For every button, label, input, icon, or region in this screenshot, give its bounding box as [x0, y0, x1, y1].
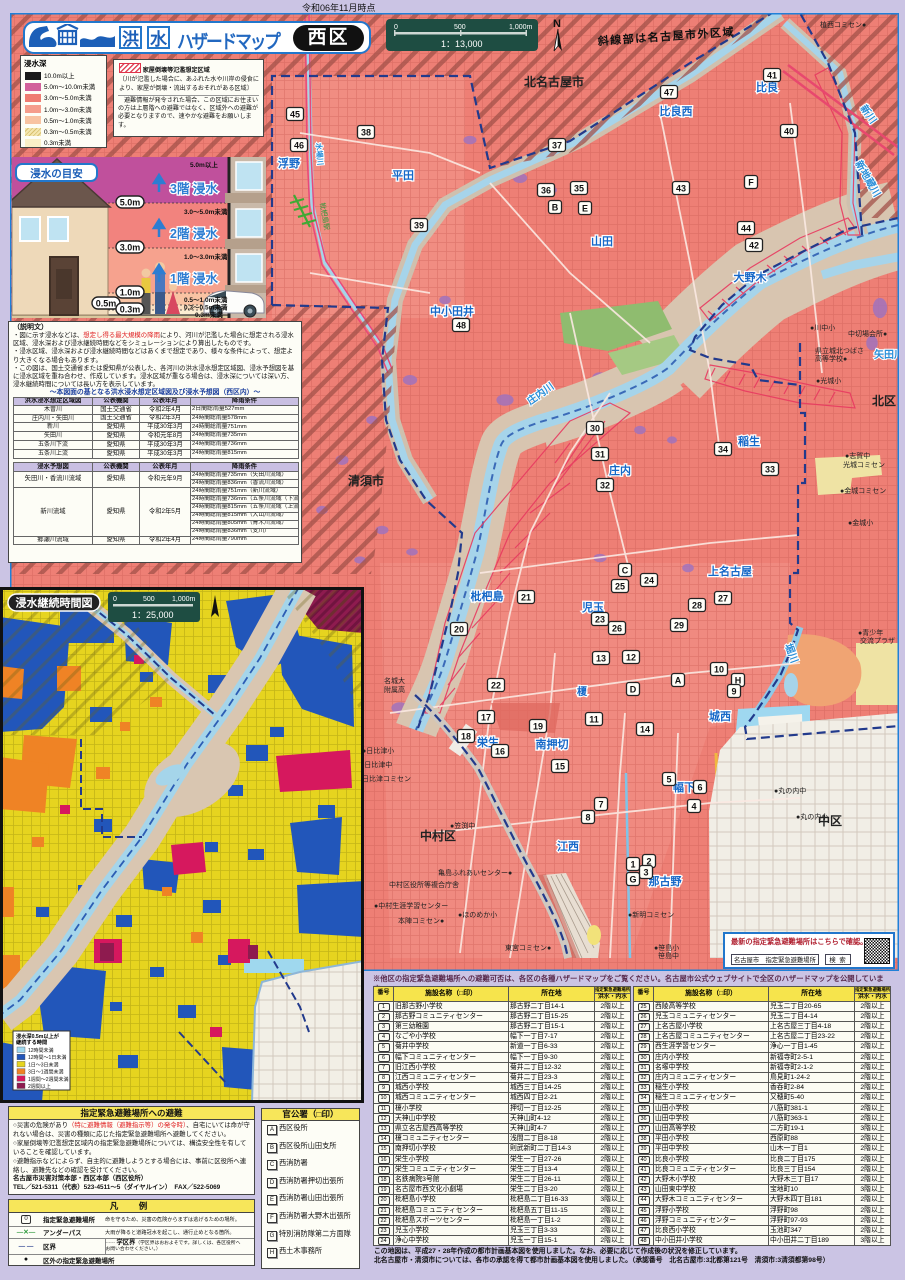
svg-text:1.0m: 1.0m	[120, 288, 141, 298]
svg-text:1日～3日未満: 1日～3日未満	[28, 1061, 59, 1068]
svg-text:5.0m: 5.0m	[120, 198, 141, 208]
svg-text:●笹島小: ●笹島小	[654, 943, 679, 952]
svg-text:稲生: 稲生	[738, 434, 760, 448]
svg-text:本陣コミセン●: 本陣コミセン●	[398, 916, 444, 925]
svg-text:1：13,000: 1：13,000	[441, 39, 483, 49]
svg-text:北名古屋市: 北名古屋市	[524, 74, 584, 89]
svg-text:9: 9	[731, 687, 736, 697]
svg-text:1: 1	[630, 860, 635, 870]
svg-text:5.0m以上: 5.0m以上	[190, 160, 218, 169]
svg-text:34: 34	[718, 445, 728, 455]
svg-text:1：25,000: 1：25,000	[132, 610, 174, 620]
svg-text:30: 30	[590, 424, 600, 434]
svg-text:3日～1週間未満: 3日～1週間未満	[28, 1069, 64, 1076]
svg-text:名城大: 名城大	[384, 676, 405, 685]
svg-text:25: 25	[615, 582, 625, 592]
svg-text:F: F	[748, 178, 754, 188]
svg-text:23: 23	[595, 615, 605, 625]
svg-text:0: 0	[113, 596, 117, 603]
svg-text:●日比津中: ●日比津中	[360, 760, 392, 769]
svg-text:0: 0	[394, 24, 398, 31]
svg-text:18: 18	[461, 732, 471, 742]
svg-text:矢田川: 矢田川	[874, 348, 899, 361]
svg-text:26: 26	[612, 624, 622, 634]
svg-text:33: 33	[765, 465, 775, 475]
svg-text:40: 40	[784, 127, 794, 137]
svg-text:植西コミセン●: 植西コミセン●	[820, 20, 866, 29]
svg-text:27: 27	[718, 594, 728, 604]
svg-text:5: 5	[666, 775, 671, 785]
svg-text:21: 21	[521, 593, 531, 603]
svg-text:山田: 山田	[591, 234, 613, 248]
svg-text:A: A	[675, 676, 682, 686]
svg-text:G: G	[629, 875, 636, 885]
svg-text:31: 31	[595, 450, 605, 460]
svg-text:43: 43	[676, 184, 686, 194]
svg-text:N: N	[553, 18, 561, 30]
svg-text:浸水継続時間図: 浸水継続時間図	[16, 596, 93, 610]
svg-text:39: 39	[414, 221, 424, 231]
svg-text:中小田井: 中小田井	[430, 304, 474, 318]
svg-text:●新明コミセン: ●新明コミセン	[628, 910, 674, 919]
svg-text:●青少年: ●青少年	[858, 628, 883, 637]
svg-text:20: 20	[454, 625, 464, 635]
svg-text:附属高: 附属高	[384, 685, 405, 694]
svg-text:浸水深0.5m以上が: 浸水深0.5m以上が	[16, 1032, 60, 1040]
svg-text:2階 浸水: 2階 浸水	[170, 226, 218, 241]
svg-text:●笠渕中: ●笠渕中	[450, 821, 475, 830]
svg-text:22: 22	[491, 681, 501, 691]
svg-text:笹島中: 笹島中	[658, 951, 679, 960]
svg-text:48: 48	[456, 321, 466, 331]
svg-text:清須市: 清須市	[348, 473, 384, 488]
svg-text:29: 29	[674, 621, 684, 631]
svg-text:中村区: 中村区	[420, 828, 456, 843]
svg-text:日比津コミセン: 日比津コミセン	[362, 774, 411, 783]
svg-text:交流プラザ: 交流プラザ	[860, 636, 895, 645]
svg-text:東宮コミセン●: 東宮コミセン●	[505, 943, 551, 952]
svg-text:12時間～1日未満: 12時間～1日未満	[28, 1054, 66, 1061]
svg-text:上名古屋: 上名古屋	[708, 564, 752, 578]
svg-text:亀島ふれあいセンター●: 亀島ふれあいセンター●	[438, 868, 512, 877]
svg-text:37: 37	[552, 141, 562, 151]
svg-text:●丸の内中: ●丸の内中	[774, 786, 806, 795]
svg-text:大野木: 大野木	[734, 270, 768, 284]
svg-text:8: 8	[585, 813, 590, 823]
svg-text:3.0m: 3.0m	[120, 243, 141, 253]
svg-text:44: 44	[741, 224, 751, 234]
svg-text:24: 24	[644, 576, 654, 586]
svg-text:12: 12	[626, 653, 636, 663]
svg-text:高等学校●: 高等学校●	[815, 354, 847, 363]
svg-text:C: C	[622, 566, 629, 576]
svg-text:江西: 江西	[557, 839, 579, 853]
svg-text:枇杷島: 枇杷島	[471, 589, 504, 603]
svg-text:●金城小: ●金城小	[848, 518, 873, 527]
svg-text:4: 4	[691, 802, 696, 812]
svg-text:19: 19	[533, 722, 543, 732]
svg-text:46: 46	[294, 141, 304, 151]
svg-text:7: 7	[598, 800, 603, 810]
svg-text:0.3～0.5m未満: 0.3～0.5m未満	[184, 303, 228, 312]
svg-text:15: 15	[555, 762, 565, 772]
svg-text:県立城北つばさ: 県立城北つばさ	[815, 346, 864, 355]
svg-text:中村区役所等複合庁舎: 中村区役所等複合庁舎	[389, 880, 459, 889]
svg-text:1.0～3.0m未満: 1.0～3.0m未満	[184, 252, 228, 261]
svg-text:12時間未満: 12時間未満	[28, 1047, 54, 1054]
svg-text:41: 41	[767, 71, 777, 81]
svg-text:庄内: 庄内	[609, 463, 631, 477]
svg-text:E: E	[582, 204, 588, 214]
svg-text:1,000m: 1,000m	[172, 596, 196, 603]
svg-text:6: 6	[697, 783, 702, 793]
svg-text:28: 28	[692, 601, 702, 611]
svg-text:11: 11	[589, 715, 599, 725]
svg-text:●志賀中: ●志賀中	[845, 451, 870, 460]
svg-text:13: 13	[596, 654, 606, 664]
svg-text:500: 500	[454, 24, 466, 31]
svg-text:36: 36	[541, 186, 551, 196]
svg-text:北区: 北区	[872, 393, 896, 408]
svg-text:1,000m: 1,000m	[509, 24, 533, 31]
svg-text:2週間以上: 2週間以上	[28, 1083, 51, 1090]
svg-text:●中村生涯学習センター: ●中村生涯学習センター	[374, 901, 448, 910]
svg-text:3: 3	[643, 868, 648, 878]
svg-text:500: 500	[143, 596, 155, 603]
svg-text:●金城コミセン: ●金城コミセン	[840, 486, 886, 495]
svg-text:●丸の内小: ●丸の内小	[796, 812, 828, 821]
svg-text:1階 浸水: 1階 浸水	[170, 271, 218, 286]
svg-text:光城コミセン: 光城コミセン	[843, 460, 885, 469]
svg-text:42: 42	[749, 241, 759, 251]
svg-text:0.5m: 0.5m	[96, 299, 117, 309]
svg-text:浮野: 浮野	[278, 156, 300, 170]
svg-text:D: D	[630, 685, 637, 695]
svg-text:16: 16	[495, 747, 505, 757]
svg-text:0.5～1.0m未満: 0.5～1.0m未満	[184, 295, 228, 304]
svg-text:●川中小: ●川中小	[810, 323, 835, 332]
svg-text:中切場会所●: 中切場会所●	[848, 329, 887, 338]
svg-text:B: B	[552, 203, 559, 213]
svg-text:1週間～2週間未満: 1週間～2週間未満	[28, 1076, 69, 1083]
svg-text:榎: 榎	[577, 685, 588, 698]
svg-text:●ほのめか小: ●ほのめか小	[458, 910, 497, 919]
svg-text:35: 35	[574, 184, 584, 194]
svg-text:3階 浸水: 3階 浸水	[170, 181, 218, 196]
svg-text:●日比津小: ●日比津小	[362, 746, 394, 755]
svg-text:0.3m: 0.3m	[120, 305, 141, 315]
svg-text:10: 10	[714, 665, 724, 675]
svg-text:47: 47	[664, 88, 674, 98]
svg-text:那古野: 那古野	[649, 874, 682, 888]
svg-text:32: 32	[600, 481, 610, 491]
svg-text:●光城小: ●光城小	[816, 376, 841, 385]
svg-text:17: 17	[481, 713, 491, 723]
svg-text:城西: 城西	[709, 709, 731, 723]
svg-text:45: 45	[290, 110, 300, 120]
svg-text:継続する時間: 継続する時間	[16, 1038, 47, 1046]
svg-text:38: 38	[361, 128, 371, 138]
svg-text:水場川: 水場川	[314, 142, 326, 165]
svg-text:比良西: 比良西	[660, 104, 693, 118]
svg-text:幅下: 幅下	[673, 780, 695, 794]
svg-text:平田: 平田	[392, 169, 414, 182]
svg-text:南押切: 南押切	[536, 737, 569, 751]
svg-text:0.3m未満: 0.3m未満	[195, 310, 223, 318]
svg-text:3.0～5.0m未満: 3.0～5.0m未満	[184, 207, 228, 216]
svg-text:14: 14	[640, 725, 650, 735]
